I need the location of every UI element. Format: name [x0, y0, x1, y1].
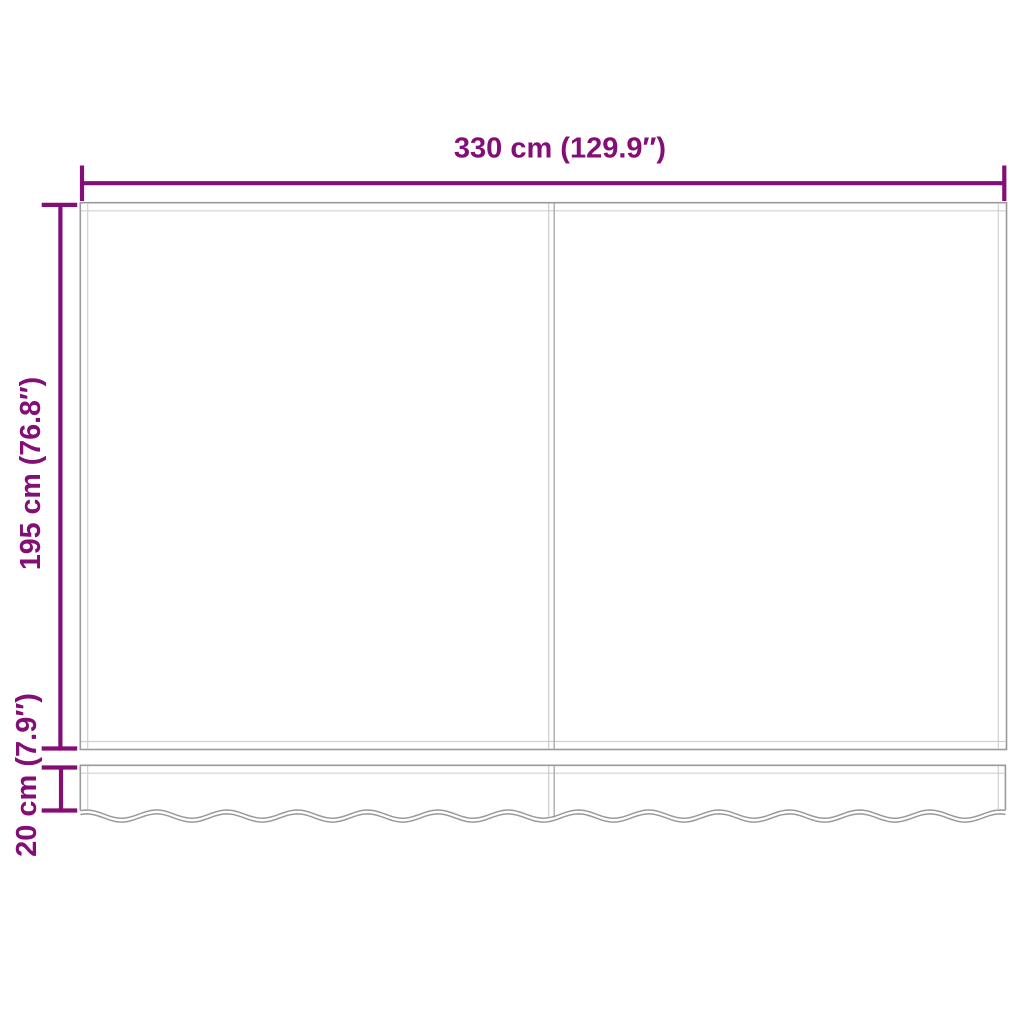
svg-text:195 cm (76.8″): 195 cm (76.8″)	[15, 377, 47, 570]
svg-text:330 cm (129.9″): 330 cm (129.9″)	[454, 133, 666, 165]
svg-text:20 cm (7.9″): 20 cm (7.9″)	[11, 693, 43, 857]
